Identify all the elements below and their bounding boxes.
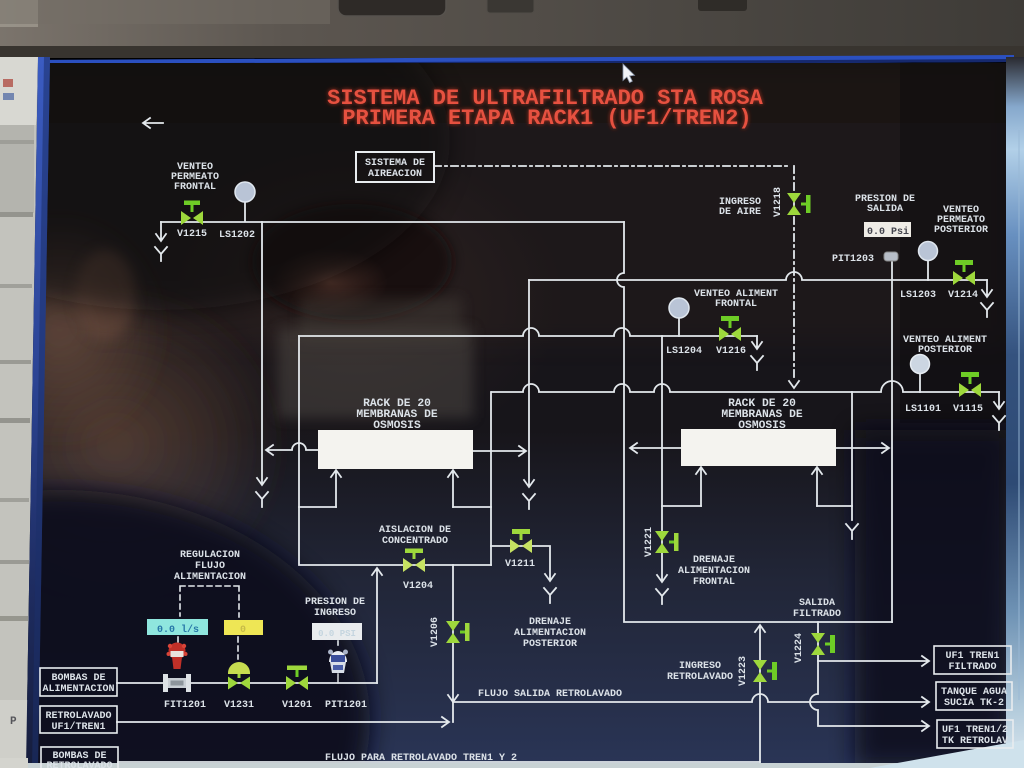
svg-text:V1201: V1201 — [282, 700, 312, 711]
svg-text:INGRESO: INGRESO — [314, 608, 356, 619]
svg-text:LS1204: LS1204 — [666, 346, 702, 357]
svg-text:V1221: V1221 — [644, 527, 655, 557]
svg-text:AISLACION DE: AISLACION DE — [379, 525, 451, 536]
svg-text:RETROLAVADO: RETROLAVADO — [45, 711, 111, 722]
svg-text:POSTERIOR: POSTERIOR — [523, 639, 577, 650]
svg-text:POSTERIOR: POSTERIOR — [918, 345, 972, 356]
svg-text:PIT1201: PIT1201 — [325, 700, 367, 711]
svg-text:UF1 TREN1/2: UF1 TREN1/2 — [942, 724, 1008, 736]
svg-text:FLUJO: FLUJO — [195, 561, 225, 572]
svg-text:RETROLAVADO: RETROLAVADO — [46, 761, 112, 768]
svg-text:SUCIA TK-2: SUCIA TK-2 — [944, 698, 1004, 709]
svg-text:LS1101: LS1101 — [905, 404, 941, 415]
svg-text:FIT1201: FIT1201 — [164, 700, 206, 711]
svg-text:V1216: V1216 — [716, 346, 746, 357]
svg-text:DRENAJE: DRENAJE — [529, 617, 571, 628]
svg-text:TK RETROLAV: TK RETROLAV — [942, 736, 1008, 747]
svg-text:PIT1203: PIT1203 — [832, 254, 874, 265]
svg-text:ALIMENTACION: ALIMENTACION — [678, 566, 750, 577]
svg-text:POSTERIOR: POSTERIOR — [934, 225, 988, 236]
svg-text:TANQUE AGUA: TANQUE AGUA — [941, 687, 1007, 698]
svg-text:LS1202: LS1202 — [219, 230, 255, 241]
svg-text:V1206: V1206 — [430, 617, 441, 647]
svg-text:V1115: V1115 — [953, 404, 983, 415]
svg-text:FLUJO PARA RETROLAVADO TREN1 Y: FLUJO PARA RETROLAVADO TREN1 Y 2 — [325, 753, 517, 764]
svg-text:LS1203: LS1203 — [900, 290, 936, 301]
svg-text:PRIMERA ETAPA RACK1 (UF1/TREN2: PRIMERA ETAPA RACK1 (UF1/TREN2) — [342, 106, 751, 131]
svg-text:V1215: V1215 — [177, 229, 207, 240]
svg-text:BOMBAS DE: BOMBAS DE — [51, 673, 105, 684]
svg-text:ALIMENTACION: ALIMENTACION — [174, 572, 246, 583]
svg-text:V1231: V1231 — [224, 700, 254, 711]
svg-text:0.0 Psi: 0.0 Psi — [867, 226, 909, 238]
svg-text:FRONTAL: FRONTAL — [715, 299, 757, 310]
svg-text:V1223: V1223 — [738, 656, 749, 686]
svg-text:V1218: V1218 — [773, 187, 784, 217]
svg-text:FLUJO SALIDA RETROLAVADO: FLUJO SALIDA RETROLAVADO — [478, 689, 622, 700]
svg-text:V1204: V1204 — [403, 581, 433, 592]
svg-text:REGULACION: REGULACION — [180, 550, 240, 561]
svg-text:ALIMENTACION: ALIMENTACION — [42, 684, 114, 695]
svg-text:DE AIRE: DE AIRE — [719, 207, 761, 218]
svg-text:OSMOSIS: OSMOSIS — [738, 420, 786, 432]
svg-text:FRONTAL: FRONTAL — [174, 182, 216, 193]
svg-text:AIREACION: AIREACION — [368, 169, 422, 180]
svg-text:V1211: V1211 — [505, 559, 535, 570]
svg-text:OSMOSIS: OSMOSIS — [373, 420, 421, 432]
svg-text:P: P — [10, 716, 17, 728]
svg-text:FILTRADO: FILTRADO — [948, 662, 996, 673]
svg-text:0.0 l/s: 0.0 l/s — [157, 624, 199, 636]
svg-text:SISTEMA DE: SISTEMA DE — [365, 158, 425, 169]
svg-text:SALIDA: SALIDA — [799, 598, 835, 609]
svg-text:FRONTAL: FRONTAL — [693, 577, 735, 588]
svg-text:DRENAJE: DRENAJE — [693, 555, 735, 566]
svg-text:PRESION DE: PRESION DE — [305, 597, 365, 608]
svg-text:SALIDA: SALIDA — [867, 204, 903, 215]
svg-text:CONCENTRADO: CONCENTRADO — [382, 536, 448, 547]
svg-text:UF1/TREN1: UF1/TREN1 — [51, 721, 105, 733]
svg-text:V1214: V1214 — [948, 290, 978, 301]
svg-text:FILTRADO: FILTRADO — [793, 609, 841, 620]
svg-text:V1224: V1224 — [794, 633, 805, 663]
svg-text:UF1 TREN1: UF1 TREN1 — [945, 651, 999, 662]
svg-text:0.0 PSI: 0.0 PSI — [318, 629, 356, 639]
svg-text:INGRESO: INGRESO — [679, 661, 721, 672]
svg-text:ALIMENTACION: ALIMENTACION — [514, 628, 586, 639]
svg-text:0: 0 — [240, 625, 246, 636]
svg-text:RETROLAVADO: RETROLAVADO — [667, 672, 733, 683]
